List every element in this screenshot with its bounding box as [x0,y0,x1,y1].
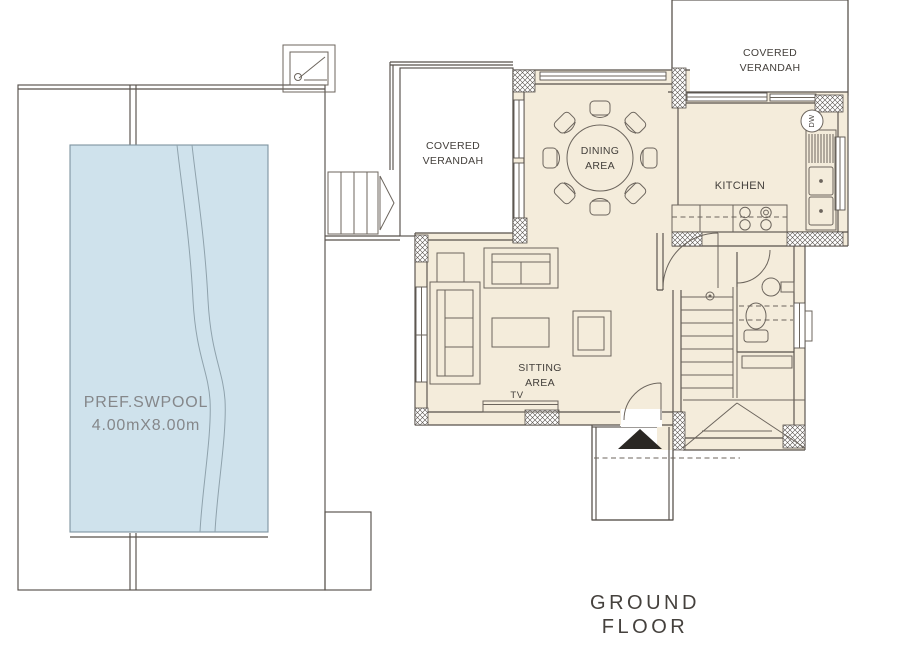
entrance-arrow-icon [618,429,662,449]
pool [70,145,268,532]
chair-icon [543,148,560,168]
window [687,93,767,101]
window [770,94,816,101]
column-hatch [787,232,843,246]
window [540,72,666,80]
column-hatch [815,95,843,112]
floorplan-drawing [0,0,900,657]
column-hatch [415,235,428,262]
pool-name: PREF.SWPOOL [84,394,208,411]
ground-floor-title: GROUND FLOOR [545,591,745,639]
kitchen-label: KITCHEN [690,179,790,194]
sitting-area-label: SITTING AREA [495,361,585,391]
outdoor-shower-icon [283,45,335,92]
floor-plan: COVERED VERANDAH COVERED VERANDAH DINING… [0,0,900,657]
column-hatch [513,70,535,92]
chair-icon [590,101,610,118]
column-hatch [415,408,428,425]
window [514,163,524,218]
column-hatch [672,232,702,246]
door-opening [621,409,662,427]
window [416,287,427,382]
chair-icon [590,199,610,216]
column-hatch [673,412,685,450]
exterior-steps-icon [328,172,394,234]
column-hatch [672,68,686,108]
tv-label: TV [497,388,537,403]
dishwasher-label: DW [807,106,817,136]
covered-verandah-left-label: COVERED VERANDAH [408,139,498,169]
window [514,100,524,158]
window [794,303,812,348]
pool-dimensions: 4.00mX8.00m [92,417,200,434]
pool-label: PREF.SWPOOL 4.00mX8.00m [76,391,216,437]
dining-area-label: DINING AREA [560,144,640,174]
covered-verandah-top-label: COVERED VERANDAH [715,46,825,76]
column-hatch [783,425,805,448]
column-hatch [513,218,527,243]
chair-icon [641,148,658,168]
deck-extension [325,512,371,590]
